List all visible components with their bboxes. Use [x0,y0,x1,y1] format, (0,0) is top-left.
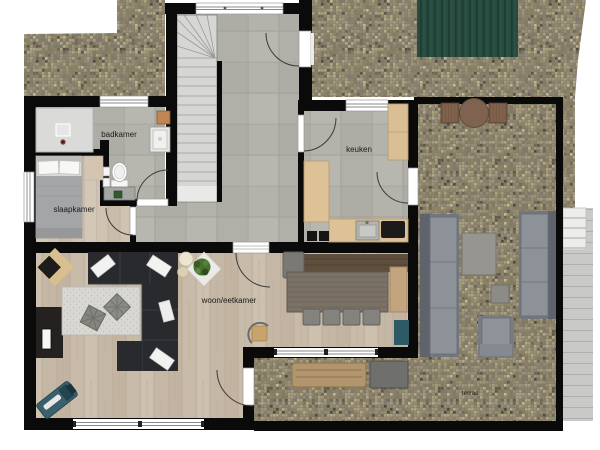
svg-text:woon/eetkamer: woon/eetkamer [201,296,257,305]
svg-text:badkamer: badkamer [101,130,137,139]
svg-text:keuken: keuken [346,145,372,154]
svg-text:terras: terras [462,390,479,397]
svg-text:slaapkamer: slaapkamer [53,205,95,214]
